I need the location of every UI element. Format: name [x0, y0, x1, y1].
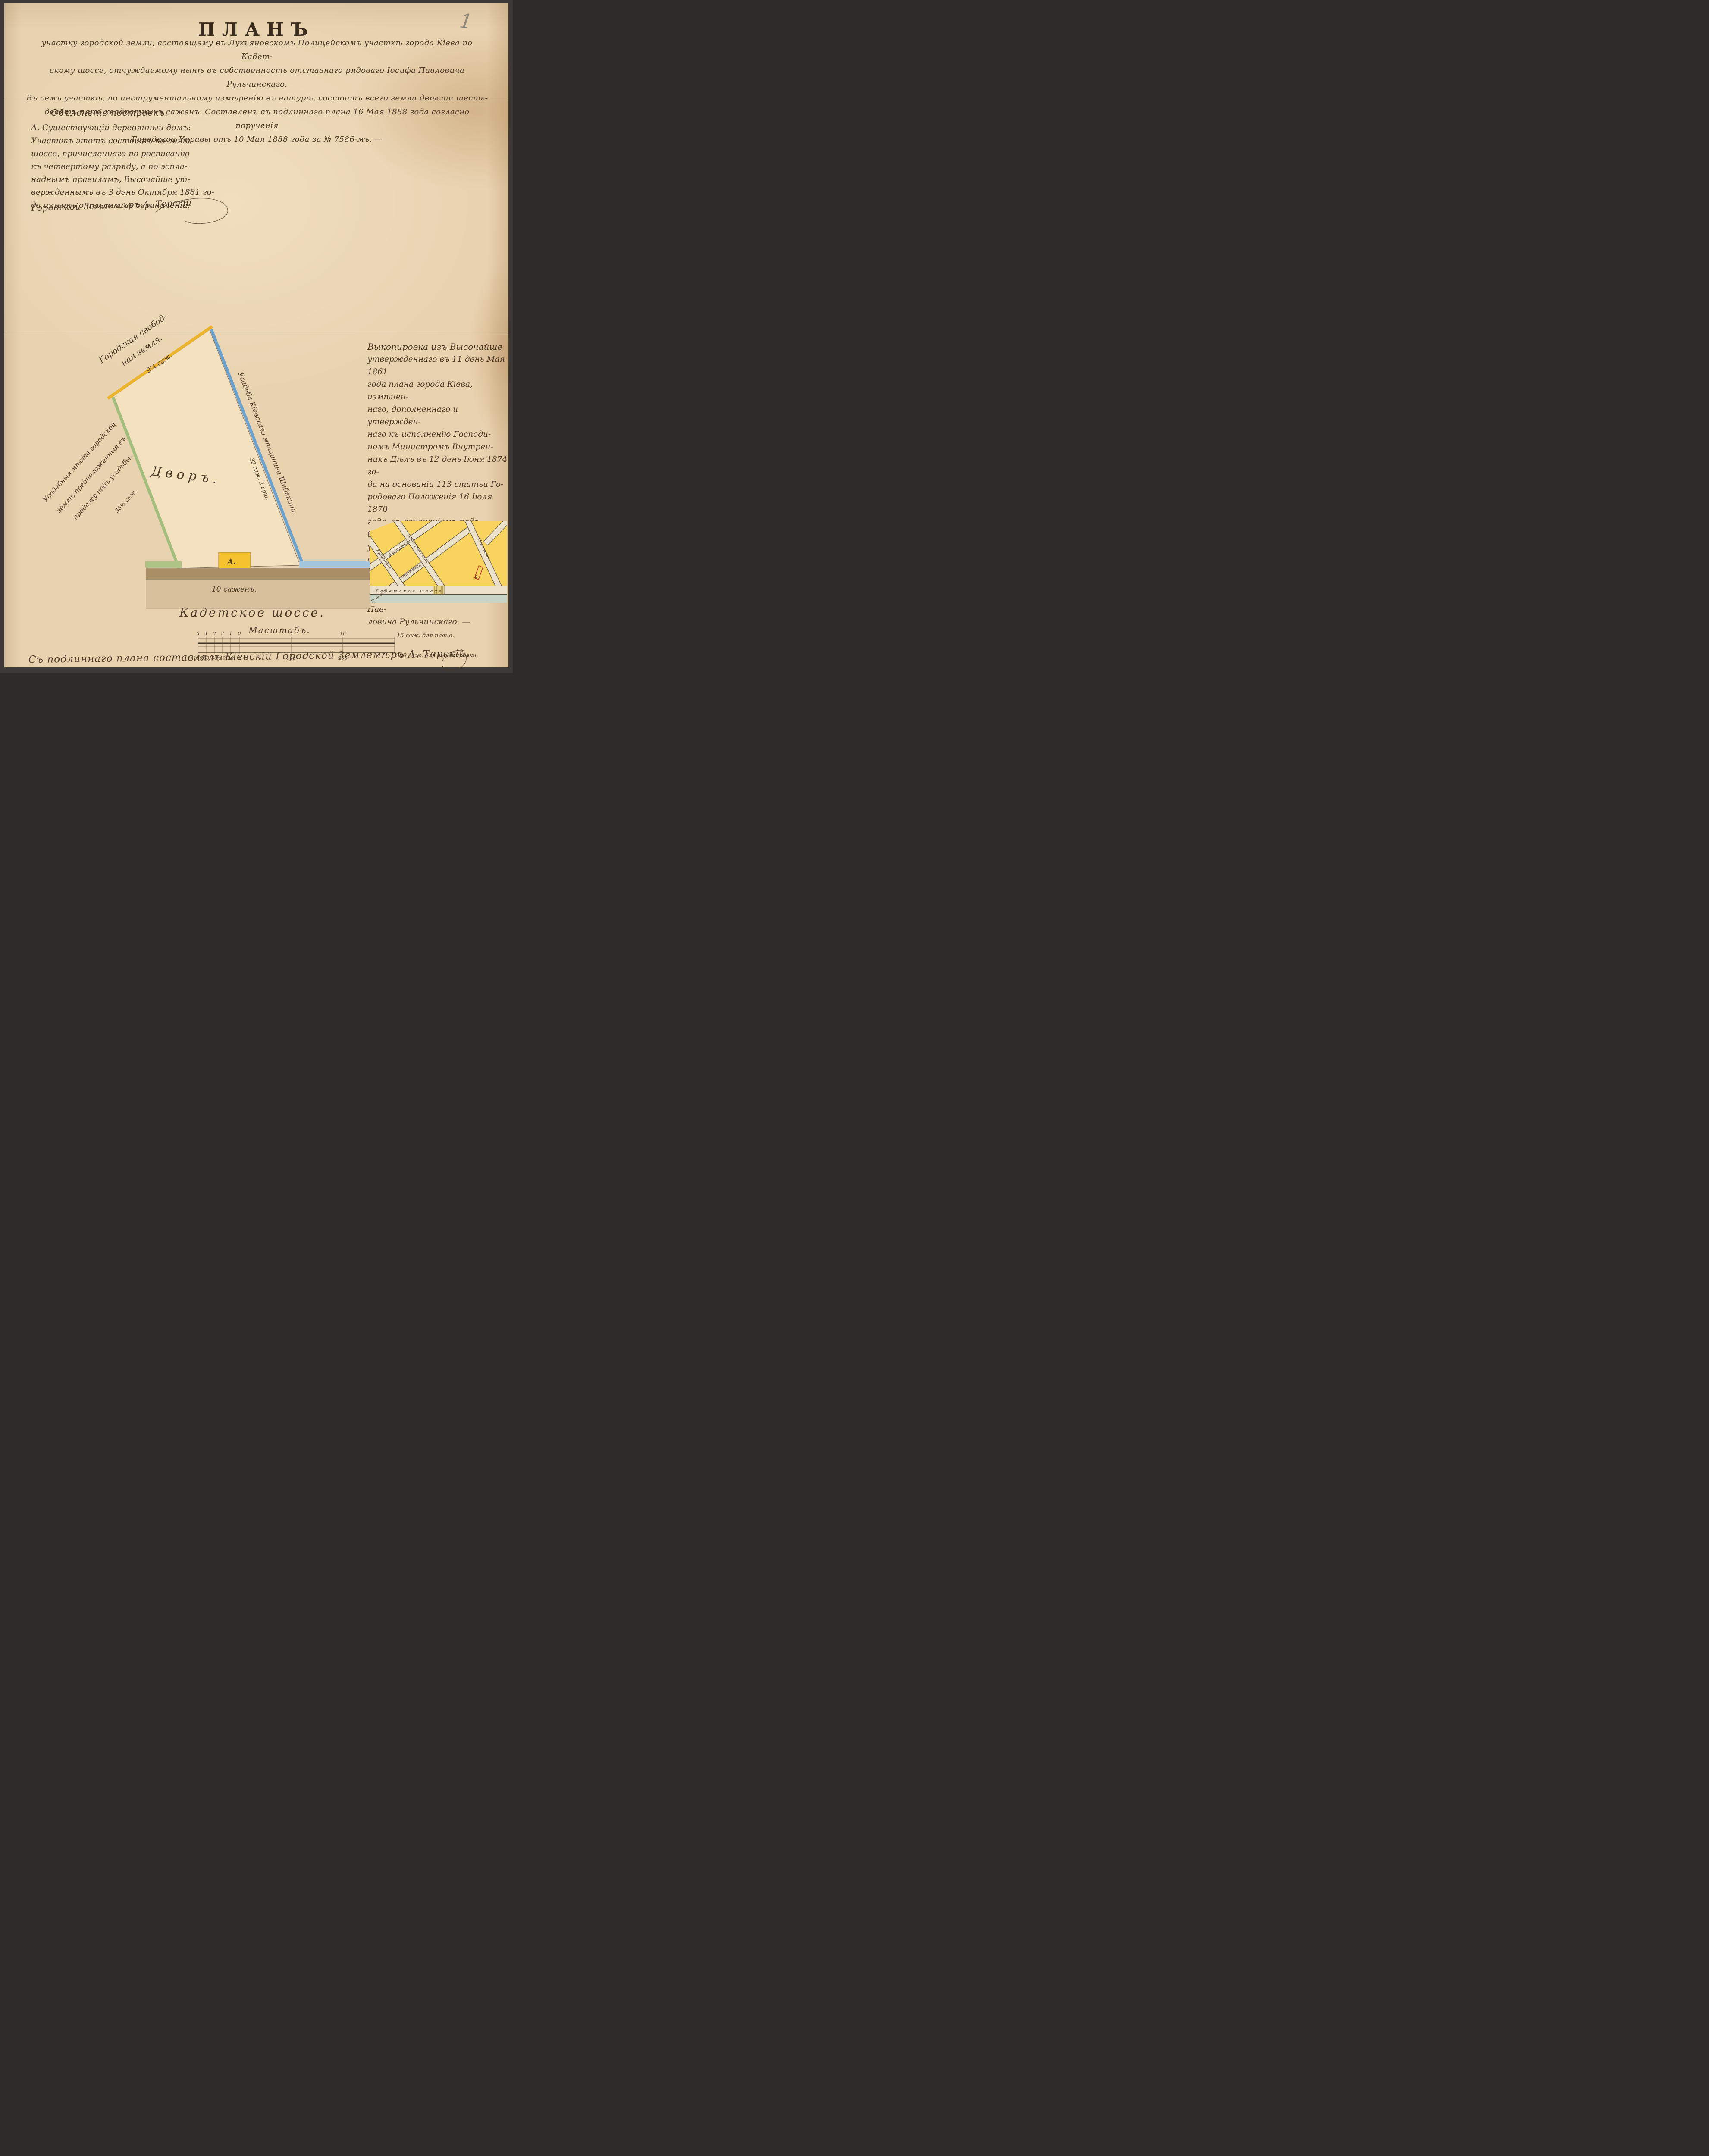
road-shoulder-strip — [146, 579, 371, 608]
plan-drawing: А. Дворъ. 10 саженъ. Кадетское шоссе. Го… — [0, 0, 513, 673]
kadetske-highway-label: Кадетское шоссе. — [179, 605, 325, 620]
plan-document-page: ПЛАНЪ 1 участку городской земли, состоящ… — [0, 0, 513, 673]
scale-tick-label: 10 — [340, 631, 346, 636]
blue-boundary-foot — [299, 561, 371, 568]
scale-tick-label: 5 — [197, 631, 200, 636]
scale-tick-label: 4 — [204, 631, 208, 636]
inset-marker-letter: а — [475, 573, 478, 579]
scale-title: Масштабъ. — [248, 625, 310, 635]
signature-flourish — [155, 198, 228, 224]
inset-field — [370, 595, 507, 603]
scale-tick-label: 5 — [290, 631, 293, 636]
green-boundary-foot — [145, 561, 182, 568]
inset-highway-label: Кадетское шоссе — [375, 589, 443, 594]
scale-tick-label: 0 — [238, 631, 241, 636]
west-boundary-measure: 36½ саж. — [114, 489, 138, 514]
frontage-measure-label: 10 саженъ. — [212, 585, 257, 594]
scale-tick-label: 2 — [221, 631, 224, 636]
building-letter-label: А. — [226, 558, 236, 566]
scale-plan-units-label: 15 саж. для плана. — [397, 633, 454, 639]
scale-tick-label: 1 — [229, 631, 232, 636]
scale-tick-label: 3 — [213, 631, 216, 636]
city-plan-inset-map: а Дмитріевская Жилянская Галицкая Кудряв… — [364, 514, 511, 605]
road-strip — [146, 569, 371, 579]
parcel-drawing: А. Дворъ. 10 саженъ. Кадетское шоссе. Го… — [41, 312, 371, 620]
